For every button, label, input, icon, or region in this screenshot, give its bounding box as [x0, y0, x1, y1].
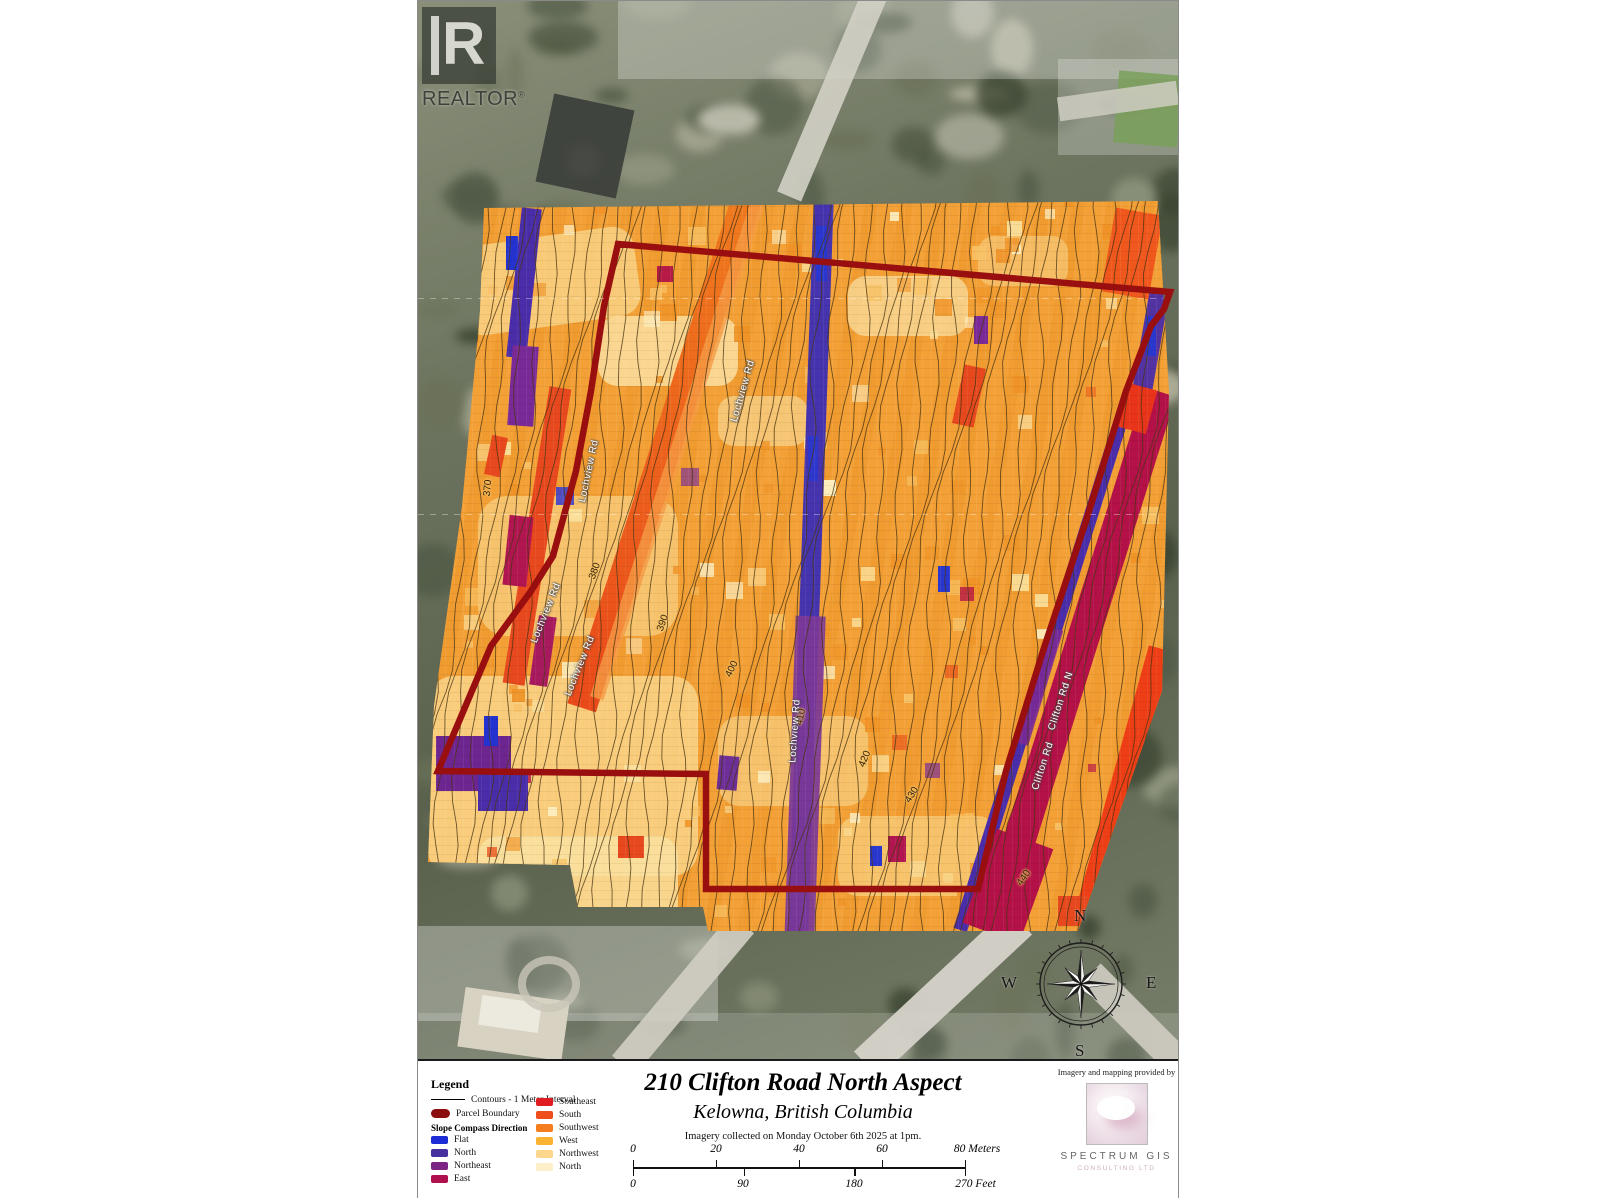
contour-label: 370 [482, 479, 494, 497]
scale-feet-tick [854, 1168, 855, 1176]
scale-feet-tick-label: 180 [845, 1178, 862, 1190]
map-subtitle: Kelowna, British Columbia [618, 1101, 988, 1124]
scale-feet-tick-label: 0 [630, 1178, 636, 1190]
legend-item-west: West [536, 1136, 578, 1146]
legend-section-title: Slope Compass Direction [431, 1123, 527, 1133]
legend-swatch-southeast [536, 1098, 553, 1106]
legend-label: Northeast [454, 1161, 491, 1171]
scale-meters-tick-label: 60 [876, 1143, 888, 1155]
legend-swatch-south [536, 1111, 553, 1119]
map-view: Lochview Rd Lochview Rd Lochview Rd Loch… [418, 1, 1178, 1059]
map-footer: Legend Contours - 1 Meter Interval Parce… [418, 1059, 1178, 1199]
scale-feet-tick [633, 1168, 634, 1176]
scale-meters-tick-label: 40 [793, 1143, 805, 1155]
imagery-caption: Imagery collected on Monday October 6th … [618, 1131, 988, 1142]
legend-label: Flat [454, 1135, 469, 1145]
legend-swatch-north [431, 1149, 448, 1157]
legend-item-north2: North [536, 1162, 581, 1172]
legend-swatch-north2 [536, 1163, 553, 1171]
scale-feet-end-label: 270 Feet [955, 1178, 996, 1190]
legend-swatch-southwest [536, 1124, 553, 1132]
compass-south-label: S [1075, 1041, 1084, 1059]
credits-company: SPECTRUM GIS [1053, 1151, 1180, 1162]
legend-swatch-northwest [536, 1150, 553, 1158]
legend-label: Northwest [559, 1149, 599, 1159]
legend-parcel-row: Parcel Boundary [431, 1109, 520, 1119]
cadastral-line [418, 514, 1163, 515]
legend-swatch-northeast [431, 1162, 448, 1170]
legend-item-north: North [431, 1148, 476, 1158]
map-title: 210 Clifton Road North Aspect [618, 1069, 988, 1097]
credits-block: Imagery and mapping provided by SPECTRUM… [1053, 1061, 1180, 1199]
legend-swatch-west [536, 1137, 553, 1145]
legend-item-flat: Flat [431, 1135, 469, 1145]
page-background: Lochview Rd Lochview Rd Lochview Rd Loch… [0, 0, 1600, 1200]
legend-label: East [454, 1174, 470, 1184]
realtor-logo-bar [431, 16, 439, 75]
compass-west-label: W [1001, 973, 1017, 993]
compass-rose [1021, 924, 1141, 1044]
legend-swatch-parcel [431, 1109, 450, 1118]
scale-meters-tick [633, 1160, 634, 1168]
scale-meters-tick [799, 1160, 800, 1168]
legend-item-southwest: Southwest [536, 1123, 599, 1133]
scale-meters-end-label: 80 Meters [954, 1143, 1000, 1155]
legend-swatch-east [431, 1175, 448, 1183]
legend-item-northwest: Northwest [536, 1149, 599, 1159]
credits-subtext: CONSULTING LTD [1053, 1165, 1180, 1172]
legend-item-east: East [431, 1174, 470, 1184]
legend-label: Southeast [559, 1097, 596, 1107]
realtor-logo-letter: R [442, 12, 485, 76]
compass-east-label: E [1146, 973, 1156, 993]
legend-label: Southwest [559, 1123, 599, 1133]
scale-feet-tick [744, 1168, 745, 1176]
realtor-logo-square: R [422, 7, 496, 84]
scale-bar [633, 1158, 965, 1178]
scale-feet-tick-label: 90 [737, 1178, 749, 1190]
scale-meters-tick-label: 20 [710, 1143, 722, 1155]
cadastral-line [418, 298, 1163, 299]
scale-meters-tick [716, 1160, 717, 1168]
legend-swatch-flat [431, 1136, 448, 1144]
map-sheet: Lochview Rd Lochview Rd Lochview Rd Loch… [417, 0, 1179, 1198]
realtor-text: REALTOR [422, 88, 518, 110]
legend-parcel-label: Parcel Boundary [456, 1109, 520, 1119]
legend-item-south: South [536, 1110, 581, 1120]
title-block: 210 Clifton Road North Aspect Kelowna, B… [618, 1061, 988, 1199]
scale-meters-tick [882, 1160, 883, 1168]
legend-label: North [454, 1148, 476, 1158]
legend-item-northeast: Northeast [431, 1161, 491, 1171]
realtor-wordmark: REALTOR® [422, 88, 542, 111]
compass-north-label: N [1074, 906, 1086, 926]
contour-line-symbol [431, 1099, 465, 1100]
legend-label: West [559, 1136, 578, 1146]
spectrum-gis-logo [1086, 1083, 1148, 1145]
spectrum-gis-logo-art [1097, 1096, 1135, 1120]
legend-item-southeast: Southeast [536, 1097, 596, 1107]
realtor-logo: R REALTOR® [422, 7, 542, 111]
parcel-boundary [418, 1, 1178, 1059]
credits-heading: Imagery and mapping provided by [1053, 1067, 1180, 1077]
legend-title: Legend [431, 1077, 469, 1092]
scale-meters-tick [965, 1160, 966, 1168]
legend-label: North [559, 1162, 581, 1172]
scale-feet-tick [965, 1168, 966, 1176]
scale-meters-tick-label: 0 [630, 1143, 636, 1155]
legend-label: South [559, 1110, 581, 1120]
registered-mark: ® [518, 89, 525, 99]
